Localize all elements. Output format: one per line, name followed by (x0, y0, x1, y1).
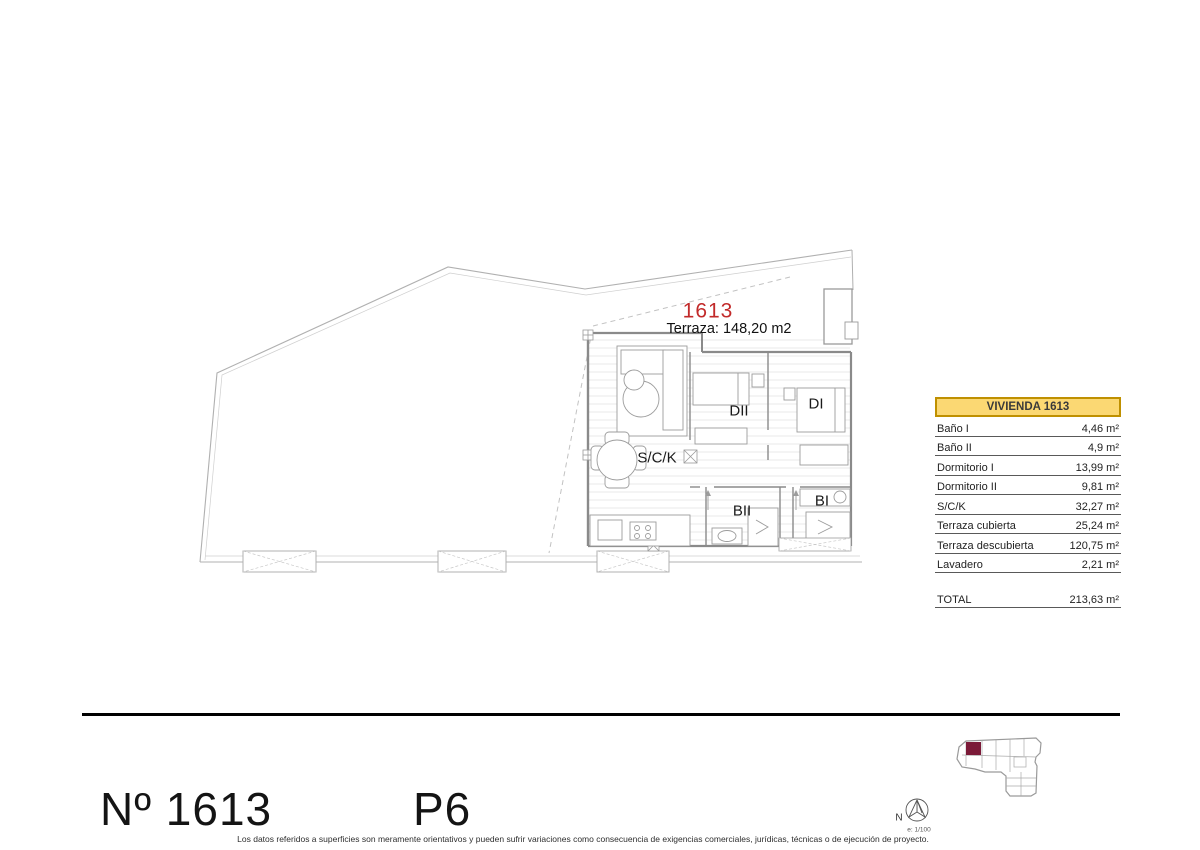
area-row: Baño I 4,46 m² (935, 417, 1121, 437)
terrace-sill-windows (243, 551, 669, 572)
area-row-label: Dormitorio I (937, 462, 994, 474)
area-row-value: 2,21 m² (1082, 559, 1119, 571)
area-row-value: 32,27 m² (1076, 501, 1119, 513)
room-label-bi: BI (815, 494, 829, 509)
area-total-label: TOTAL (937, 594, 971, 606)
sheet-floor-title: P6 (413, 786, 471, 832)
area-row-label: Terraza descubierta (937, 540, 1034, 552)
area-row: S/C/K 32,27 m² (935, 495, 1121, 515)
area-row: Terraza cubierta 25,24 m² (935, 515, 1121, 535)
area-row: Lavadero 2,21 m² (935, 554, 1121, 574)
area-total-value: 213,63 m² (1069, 594, 1119, 606)
north-arrow-icon (906, 799, 928, 821)
terrace-area-label: Terraza: 148,20 m2 (667, 322, 792, 337)
bi-sill (779, 538, 851, 551)
room-label-di: DI (809, 397, 824, 412)
area-table-header: VIVIENDA 1613 (935, 397, 1121, 417)
sheet-unit-title: Nº 1613 (100, 786, 272, 832)
area-total-row: TOTAL 213,63 m² (935, 588, 1121, 608)
plan-sheet: 1613 Terraza: 148,20 m2 DII DI S/C/K BII… (0, 0, 1200, 850)
disclaimer-text: Los datos referidos a superficies son me… (237, 834, 929, 844)
keyplan-icon (957, 738, 1041, 796)
area-row-label: S/C/K (937, 501, 966, 513)
north-label: N (895, 813, 902, 824)
area-row: Baño II 4,9 m² (935, 437, 1121, 457)
titleblock-divider (82, 713, 1120, 716)
keyplan-highlight-unit (966, 742, 981, 755)
scale-label: e: 1/100 (907, 827, 931, 834)
area-row-label: Lavadero (937, 559, 983, 571)
sofa (617, 346, 687, 436)
unit-number-label: 1613 (683, 301, 734, 322)
area-table: VIVIENDA 1613 Baño I 4,46 m² Baño II 4,9… (935, 397, 1121, 608)
area-row-value: 4,9 m² (1088, 442, 1119, 454)
area-row-value: 4,46 m² (1082, 423, 1119, 435)
area-row-label: Baño I (937, 423, 969, 435)
roof-structure (824, 289, 858, 344)
area-row-value: 9,81 m² (1082, 481, 1119, 493)
area-row-label: Dormitorio II (937, 481, 997, 493)
room-label-bii: BII (733, 504, 751, 519)
area-row: Dormitorio II 9,81 m² (935, 476, 1121, 496)
kitchen-counter (590, 515, 690, 546)
room-label-sck: S/C/K (637, 451, 676, 466)
area-row-value: 25,24 m² (1076, 520, 1119, 532)
area-row-value: 13,99 m² (1076, 462, 1119, 474)
area-row: Terraza descubierta 120,75 m² (935, 534, 1121, 554)
area-row: Dormitorio I 13,99 m² (935, 456, 1121, 476)
room-label-dii: DII (729, 404, 748, 419)
area-row-value: 120,75 m² (1069, 540, 1119, 552)
area-row-label: Terraza cubierta (937, 520, 1016, 532)
area-row-label: Baño II (937, 442, 972, 454)
